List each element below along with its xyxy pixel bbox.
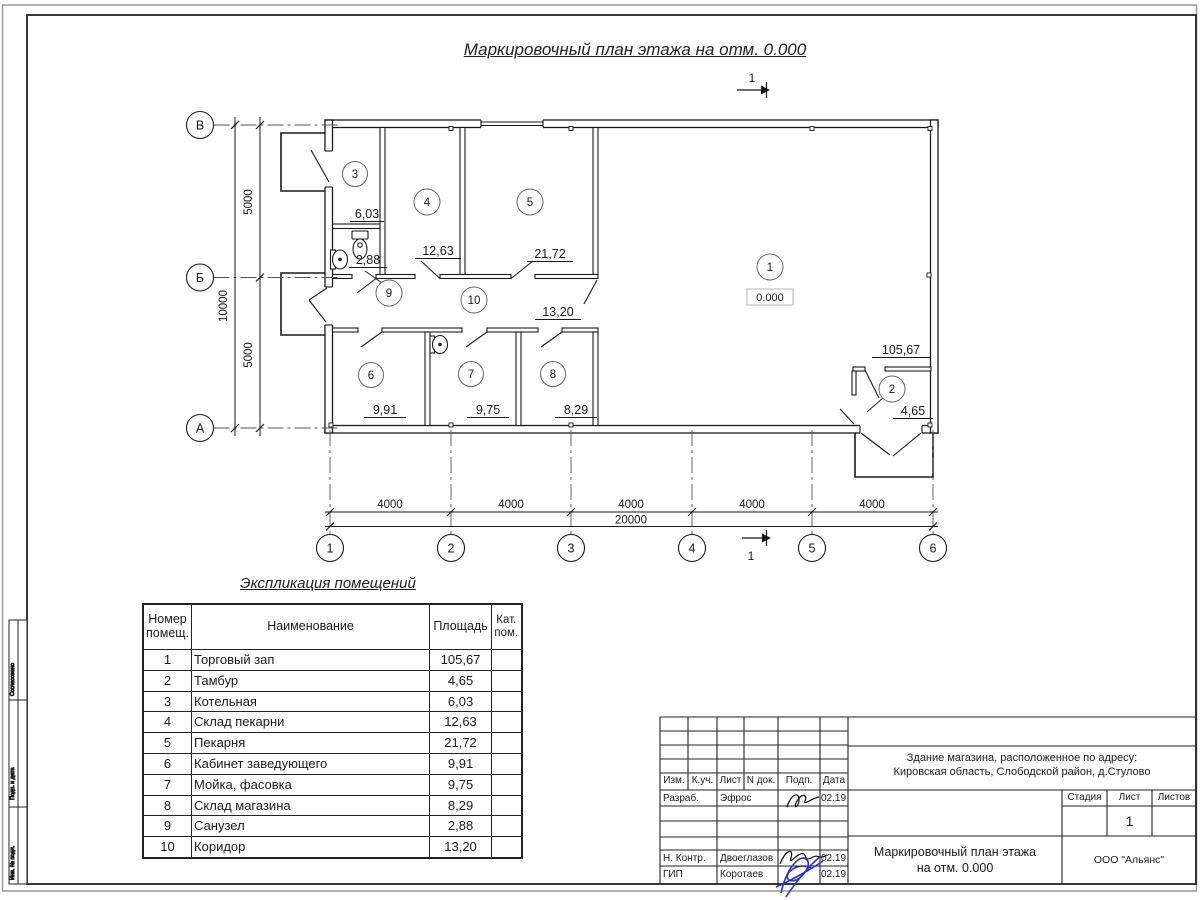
cell-num: 8 <box>143 795 192 816</box>
side-stamp: Согласовано Подп. и дата Инв. № подл. <box>9 620 27 884</box>
col-header-name: Наименование <box>192 604 430 650</box>
cell-area: 6,03 <box>430 691 492 712</box>
room-num-6: 6 <box>368 370 374 382</box>
cell-area: 9,91 <box>430 753 492 774</box>
cell-name: Склад пекарни <box>192 712 430 733</box>
axis-wall-markers <box>329 127 932 428</box>
axis-col-6: 6 <box>930 542 937 556</box>
tb-address-line1: Здание магазина, расположенное по адресу… <box>848 752 1196 764</box>
cell-cat <box>492 691 522 712</box>
room-num-8: 8 <box>550 369 556 381</box>
sink-icon-room7 <box>430 336 448 354</box>
tb-name-gip: Коротаев <box>720 869 763 880</box>
cell-cat <box>492 753 522 774</box>
cell-num: 6 <box>143 753 192 774</box>
room-num-9: 9 <box>386 288 392 300</box>
side-stamp-label-1: Согласовано <box>10 663 16 696</box>
tb-stage-label: Стадия <box>1062 792 1107 803</box>
cell-area: 8,29 <box>430 795 492 816</box>
section-mark-bottom: 1 <box>742 530 771 563</box>
dimension-lines <box>235 117 938 527</box>
area-room-8: 8,29 <box>564 403 588 417</box>
signature-razrab <box>787 795 819 807</box>
dim-20000: 20000 <box>615 515 647 527</box>
cell-name: Кабинет заведующего <box>192 753 430 774</box>
axis-col-3: 3 <box>568 542 575 556</box>
tb-role-gip: ГИП <box>663 869 683 880</box>
cell-name: Котельная <box>192 691 430 712</box>
tb-doc-title-line1: Маркировочный план этажа <box>848 845 1062 859</box>
axis-col-5: 5 <box>809 542 816 556</box>
tb-doc-title-line2: на отм. 0.000 <box>848 861 1062 875</box>
table-row: 1Торговый зап105,67 <box>143 650 522 671</box>
room-num-2: 2 <box>889 384 895 396</box>
side-stamp-label-2: Подп. и дата <box>10 767 16 800</box>
cell-num: 1 <box>143 650 192 671</box>
axis-row-a: А <box>196 422 205 436</box>
tb-name-razrab: Эфрос <box>720 793 752 804</box>
axis-col-1: 1 <box>327 542 334 556</box>
tb-role-nkontr: Н. Контр. <box>663 853 706 864</box>
dim-4000-5: 4000 <box>859 499 885 511</box>
cell-num: 7 <box>143 774 192 795</box>
cell-name: Санузел <box>192 816 430 837</box>
tb-sheet-number: 1 <box>1107 813 1152 829</box>
tb-sheets-label: Листов <box>1152 792 1196 803</box>
axis-col-2: 2 <box>448 542 455 556</box>
cell-cat <box>492 795 522 816</box>
tb-sheet-label: Лист <box>1107 792 1152 803</box>
room-area-labels: 6,03 2,88 12,63 21,72 13,20 9,91 9,75 8,… <box>355 207 925 418</box>
cell-cat <box>492 712 522 733</box>
explication-table: Номер помещ. Наименование Площадь Кат. п… <box>142 603 523 859</box>
room-num-4: 4 <box>424 197 431 209</box>
col-header-cat: Кат. пом. <box>492 604 522 650</box>
axis-col-4: 4 <box>689 542 696 556</box>
cell-area: 2,88 <box>430 816 492 837</box>
dimension-labels: 4000 4000 4000 4000 4000 20000 5000 5000… <box>218 189 885 526</box>
col-header-num: Номер помещ. <box>143 604 192 650</box>
cell-area: 13,20 <box>430 837 492 858</box>
axis-row-b: Б <box>196 271 204 285</box>
cell-cat <box>492 774 522 795</box>
cell-cat <box>492 837 522 858</box>
exterior-walls <box>325 120 938 433</box>
area-room-10: 13,20 <box>542 305 573 319</box>
sink-icon-wc <box>331 250 348 269</box>
col-header-area: Площадь <box>430 604 492 650</box>
room-num-1: 1 <box>767 262 773 274</box>
dim-5000-bottom: 5000 <box>243 342 255 368</box>
tb-header-podp: Подп. <box>778 775 820 786</box>
cell-area: 9,75 <box>430 774 492 795</box>
table-row: 2Тамбур4,65 <box>143 670 522 691</box>
area-room-4: 12,63 <box>422 244 453 258</box>
cell-num: 4 <box>143 712 192 733</box>
area-room-9: 2,88 <box>356 253 380 267</box>
cell-area: 105,67 <box>430 650 492 671</box>
cell-num: 3 <box>143 691 192 712</box>
tb-date-razrab: 02.19 <box>821 793 846 804</box>
room-num-10: 10 <box>468 295 481 307</box>
dim-4000-3: 4000 <box>618 499 644 511</box>
cell-num: 9 <box>143 816 192 837</box>
tb-header-list: Лист <box>717 775 744 786</box>
area-room-2: 4,65 <box>901 404 925 418</box>
tb-header-izm: Изм. <box>660 775 688 786</box>
cell-name: Пекарня <box>192 733 430 754</box>
tb-header-kuch: К.уч. <box>688 775 717 786</box>
explication-title: Экспликация помещений <box>228 575 428 592</box>
cell-cat <box>492 733 522 754</box>
table-row: 9Санузел2,88 <box>143 816 522 837</box>
table-row: 3Котельная6,03 <box>143 691 522 712</box>
cell-num: 2 <box>143 670 192 691</box>
tb-address-line2: Кировская область, Слободской район, д.С… <box>848 766 1196 778</box>
area-room-5: 21,72 <box>534 247 565 261</box>
table-row: 7Мойка, фасовка9,75 <box>143 774 522 795</box>
area-room-6: 9,91 <box>373 403 397 417</box>
tb-header-data: Дата <box>820 775 848 786</box>
tb-date-nkontr: 02.19 <box>821 853 846 864</box>
cell-name: Торговый зап <box>192 650 430 671</box>
cell-area: 12,63 <box>430 712 492 733</box>
table-row: 6Кабинет заведующего9,91 <box>143 753 522 774</box>
drawing-sheet: { "sheet": { "plan_title": "Маркировочны… <box>0 0 1200 900</box>
dim-5000-top: 5000 <box>243 189 255 215</box>
section-num-top: 1 <box>749 71 756 85</box>
tb-date-gip: 02.19 <box>821 869 846 880</box>
signatures <box>776 795 827 897</box>
side-stamp-label-3: Инв. № подл. <box>10 845 16 880</box>
door-leaves <box>309 150 921 456</box>
cell-name: Склад магазина <box>192 795 430 816</box>
area-room-1: 105,67 <box>882 343 920 357</box>
cell-num: 10 <box>143 837 192 858</box>
table-row: 5Пекарня21,72 <box>143 733 522 754</box>
cell-cat <box>492 816 522 837</box>
dim-4000-2: 4000 <box>498 499 524 511</box>
cell-area: 21,72 <box>430 733 492 754</box>
table-row: 4Склад пекарни12,63 <box>143 712 522 733</box>
cell-name: Коридор <box>192 837 430 858</box>
table-row: 10Коридор13,20 <box>143 837 522 858</box>
section-num-bottom: 1 <box>748 549 755 563</box>
cell-cat <box>492 670 522 691</box>
tb-role-razrab: Разраб. <box>663 793 699 804</box>
elevation-mark: 0.000 <box>747 289 793 305</box>
dim-10000: 10000 <box>218 290 230 322</box>
table-row: 8Склад магазина8,29 <box>143 795 522 816</box>
cell-area: 4,65 <box>430 670 492 691</box>
axis-row-v: В <box>196 119 204 133</box>
room-num-5: 5 <box>527 197 533 209</box>
tb-company: ООО "Альянс" <box>1062 854 1196 866</box>
tb-name-nkontr: Двоеглазов <box>720 853 773 864</box>
room-num-3: 3 <box>352 169 358 181</box>
section-mark-top: 1 <box>737 71 770 98</box>
dim-4000-4: 4000 <box>739 499 765 511</box>
cell-name: Мойка, фасовка <box>192 774 430 795</box>
cell-cat <box>492 650 522 671</box>
dim-4000-1: 4000 <box>377 499 403 511</box>
axis-bubbles: 1 2 3 4 5 6 В Б А <box>187 112 947 562</box>
elevation-value: 0.000 <box>756 292 784 304</box>
explication-header-row: Номер помещ. Наименование Площадь Кат. п… <box>143 604 522 650</box>
area-room-3: 6,03 <box>355 207 379 221</box>
cell-name: Тамбур <box>192 670 430 691</box>
plan-title: Маркировочный план этажа на отм. 0.000 <box>420 40 850 60</box>
area-room-7: 9,75 <box>476 403 500 417</box>
cell-num: 5 <box>143 733 192 754</box>
tb-header-ndok: N док. <box>744 775 778 786</box>
interior-walls <box>333 128 932 426</box>
dimension-ticks <box>231 121 937 531</box>
room-num-7: 7 <box>468 369 474 381</box>
